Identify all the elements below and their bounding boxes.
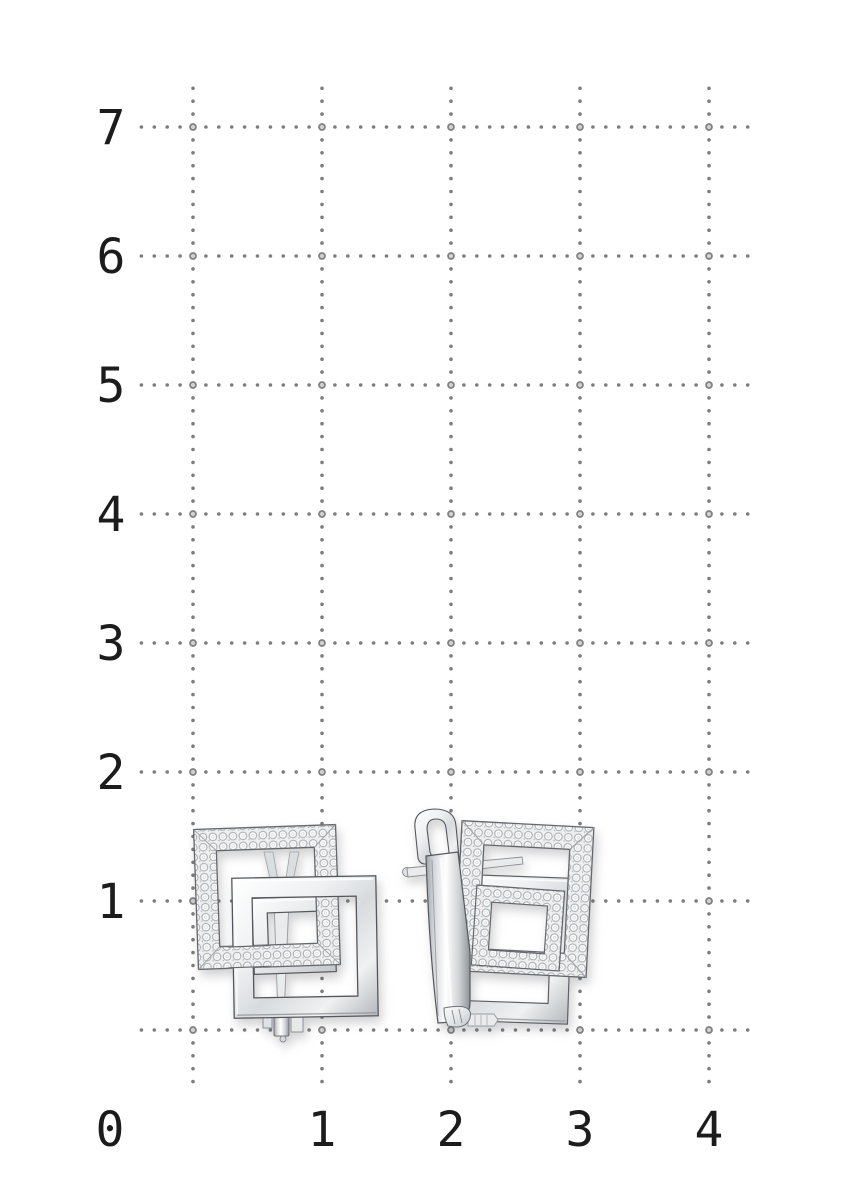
grid-dot <box>578 164 582 168</box>
grid-dot <box>540 770 544 774</box>
grid-dot <box>707 990 711 994</box>
grid-dot <box>153 641 157 645</box>
grid-dot <box>707 280 711 284</box>
grid-dot <box>449 577 453 581</box>
grid-dot <box>475 770 479 774</box>
grid-dot <box>191 744 195 748</box>
grid-dot <box>320 538 324 542</box>
grid-dot <box>320 1041 324 1045</box>
grid-dot <box>578 151 582 155</box>
grid-dot <box>578 87 582 91</box>
grid-dot <box>707 319 711 323</box>
grid-dot <box>269 512 273 516</box>
grid-dot <box>320 474 324 478</box>
grid-dot <box>449 280 453 284</box>
grid-dot <box>178 770 182 774</box>
grid-dot <box>191 822 195 826</box>
grid-dot <box>707 99 711 103</box>
grid-dot <box>243 770 247 774</box>
grid-dot <box>578 667 582 671</box>
grid-dot <box>449 551 453 555</box>
grid-dot <box>449 744 453 748</box>
grid-dot <box>462 770 466 774</box>
grid-dot <box>669 125 673 129</box>
grid-dot <box>320 486 324 490</box>
grid-dot <box>191 951 195 955</box>
grid-dot <box>243 383 247 387</box>
grid-dot <box>720 1028 724 1032</box>
grid-dot <box>320 783 324 787</box>
grid-dot <box>720 125 724 129</box>
grid-node-dot <box>448 382 454 388</box>
grid-dot <box>359 383 363 387</box>
grid-dot <box>527 125 531 129</box>
grid-dot <box>746 512 750 516</box>
grid-dot <box>707 809 711 813</box>
grid-dot <box>578 732 582 736</box>
grid-dot <box>527 254 531 258</box>
grid-dot <box>191 370 195 374</box>
grid-dot <box>191 1054 195 1058</box>
grid-dot <box>320 654 324 658</box>
left-earring-weave-patch <box>228 945 271 968</box>
grid-dot <box>269 383 273 387</box>
grid-dot <box>320 719 324 723</box>
grid-dot <box>294 383 298 387</box>
grid-dot <box>333 512 337 516</box>
grid-dot <box>449 783 453 787</box>
grid-dot <box>191 886 195 890</box>
grid-dot <box>565 641 569 645</box>
grid-dot <box>320 732 324 736</box>
grid-dot <box>191 306 195 310</box>
x-axis-label: 2 <box>437 1102 466 1158</box>
scene-svg: 012347654321 <box>0 0 857 1200</box>
grid-dot <box>707 693 711 697</box>
grid-dot <box>578 757 582 761</box>
grid-dot <box>707 525 711 529</box>
grid-dot <box>140 254 144 258</box>
grid-dot <box>604 125 608 129</box>
grid-dot <box>217 254 221 258</box>
grid-dot <box>591 125 595 129</box>
grid-dot <box>681 770 685 774</box>
grid-dot <box>707 577 711 581</box>
grid-dot <box>320 396 324 400</box>
grid-dot <box>578 1041 582 1045</box>
grid-dot <box>462 125 466 129</box>
grid-dot <box>307 641 311 645</box>
grid-dot <box>359 770 363 774</box>
grid-dot <box>707 241 711 245</box>
grid-dot <box>385 125 389 129</box>
grid-dot <box>333 1028 337 1032</box>
grid-dot <box>320 1067 324 1071</box>
grid-dot <box>359 641 363 645</box>
grid-dot <box>372 383 376 387</box>
grid-dot <box>565 125 569 129</box>
grid-dot <box>643 383 647 387</box>
grid-dot <box>256 383 260 387</box>
grid-dot <box>449 396 453 400</box>
grid-dot <box>552 383 556 387</box>
grid-dot <box>320 564 324 568</box>
grid-node-dot <box>706 640 712 646</box>
grid-dot <box>707 615 711 619</box>
grid-dot <box>320 1054 324 1058</box>
y-axis-label: 3 <box>97 616 126 672</box>
grid-dot <box>320 99 324 103</box>
grid-dot <box>488 125 492 129</box>
grid-node-dot <box>706 769 712 775</box>
grid-dot <box>746 125 750 129</box>
grid-dot <box>681 383 685 387</box>
grid-dot <box>578 138 582 142</box>
grid-dot <box>217 1028 221 1032</box>
grid-dot <box>165 1028 169 1032</box>
grid-dot <box>630 1028 634 1032</box>
grid-dot <box>707 628 711 632</box>
grid-dot <box>191 151 195 155</box>
grid-dot <box>669 383 673 387</box>
grid-dot <box>372 770 376 774</box>
grid-dot <box>449 422 453 426</box>
grid-dot <box>720 899 724 903</box>
grid-dot <box>191 603 195 607</box>
grid-node-dot <box>577 382 583 388</box>
grid-dot <box>320 203 324 207</box>
grid-dot <box>320 990 324 994</box>
grid-node-dot <box>577 1027 583 1033</box>
grid-dot <box>501 512 505 516</box>
grid-dot <box>243 125 247 129</box>
grid-dot <box>191 938 195 942</box>
grid-dot <box>488 383 492 387</box>
grid-dot <box>578 706 582 710</box>
grid-dot <box>707 499 711 503</box>
grid-dot <box>707 977 711 981</box>
grid-dot <box>333 641 337 645</box>
grid-dot <box>140 641 144 645</box>
grid-dot <box>707 654 711 658</box>
grid-dot <box>475 125 479 129</box>
grid-dot <box>681 125 685 129</box>
grid-dot <box>320 409 324 413</box>
grid-dot <box>578 499 582 503</box>
grid-dot <box>578 693 582 697</box>
grid-node-dot <box>190 253 196 259</box>
grid-dot <box>514 770 518 774</box>
grid-dot <box>578 615 582 619</box>
grid-dot <box>449 216 453 220</box>
grid-dot <box>307 125 311 129</box>
grid-dot <box>346 641 350 645</box>
grid-dot <box>707 938 711 942</box>
grid-dot <box>578 461 582 465</box>
grid-dot <box>230 254 234 258</box>
grid-dot <box>191 977 195 981</box>
grid-dot <box>707 1002 711 1006</box>
grid-dot <box>449 1041 453 1045</box>
grid-dot <box>501 254 505 258</box>
grid-dot <box>707 886 711 890</box>
grid-dot <box>578 1002 582 1006</box>
grid-dot <box>307 770 311 774</box>
grid-dot <box>591 770 595 774</box>
grid-dot <box>707 796 711 800</box>
grid-dot <box>449 319 453 323</box>
grid-dot <box>320 615 324 619</box>
grid-dot <box>617 512 621 516</box>
grid-node-dot <box>190 124 196 130</box>
grid-dot <box>449 693 453 697</box>
grid-dot <box>191 667 195 671</box>
grid-dot <box>578 1080 582 1084</box>
grid-dot <box>411 1028 415 1032</box>
grid-dot <box>243 254 247 258</box>
grid-dot <box>514 512 518 516</box>
grid-dot <box>320 293 324 297</box>
grid-dot <box>449 203 453 207</box>
grid-dot <box>204 641 208 645</box>
grid-dot <box>191 628 195 632</box>
grid-dot <box>256 641 260 645</box>
grid-dot <box>578 203 582 207</box>
grid-dot <box>294 641 298 645</box>
grid-dot <box>746 383 750 387</box>
grid-dot <box>578 332 582 336</box>
grid-dot <box>191 319 195 323</box>
grid-dot <box>449 293 453 297</box>
grid-dot <box>449 461 453 465</box>
grid-dot <box>578 577 582 581</box>
grid-dot <box>191 409 195 413</box>
grid-dot <box>230 1028 234 1032</box>
grid-dot <box>320 357 324 361</box>
grid-dot <box>630 512 634 516</box>
grid-dot <box>578 293 582 297</box>
grid-dot <box>191 590 195 594</box>
grid-dot <box>140 1028 144 1032</box>
grid-dot <box>153 254 157 258</box>
grid-dot <box>578 603 582 607</box>
grid-dot <box>630 254 634 258</box>
grid-dot <box>423 383 427 387</box>
grid-dot <box>694 125 698 129</box>
grid-dot <box>359 125 363 129</box>
grid-dot <box>578 345 582 349</box>
grid-dot <box>540 383 544 387</box>
grid-dot <box>475 641 479 645</box>
grid-dot <box>423 125 427 129</box>
grid-dot <box>204 383 208 387</box>
grid-dot <box>707 1067 711 1071</box>
grid-dot <box>385 383 389 387</box>
grid-dot <box>578 422 582 426</box>
grid-dot <box>191 203 195 207</box>
grid-dot <box>191 719 195 723</box>
grid-dot <box>643 1028 647 1032</box>
grid-dot <box>488 1028 492 1032</box>
grid-dot <box>191 732 195 736</box>
grid-dot <box>488 770 492 774</box>
grid-dot <box>449 151 453 155</box>
grid-dot <box>707 332 711 336</box>
grid-dot <box>436 512 440 516</box>
grid-dot <box>475 254 479 258</box>
grid-dot <box>578 474 582 478</box>
x-axis-label: 4 <box>695 1102 724 1158</box>
grid-dot <box>320 177 324 181</box>
grid-dot <box>191 99 195 103</box>
grid-dot <box>204 254 208 258</box>
grid-dot <box>436 770 440 774</box>
grid-dot <box>153 1028 157 1032</box>
grid-dot <box>191 693 195 697</box>
grid-dot <box>333 125 337 129</box>
grid-dot <box>449 306 453 310</box>
grid-dot <box>643 770 647 774</box>
grid-dot <box>411 512 415 516</box>
grid-node-dot <box>448 1027 454 1033</box>
grid-dot <box>191 615 195 619</box>
grid-dot <box>191 1067 195 1071</box>
grid-dot <box>552 641 556 645</box>
grid-dot <box>449 409 453 413</box>
grid-node-dot <box>319 511 325 517</box>
grid-dot <box>669 512 673 516</box>
grid-dot <box>681 641 685 645</box>
grid-dot <box>694 254 698 258</box>
grid-node-dot <box>319 124 325 130</box>
grid-dot <box>191 654 195 658</box>
grid-dot <box>320 603 324 607</box>
grid-dot <box>372 641 376 645</box>
grid-dot <box>630 383 634 387</box>
grid-dot <box>501 641 505 645</box>
grid-dot <box>269 125 273 129</box>
grid-dot <box>669 770 673 774</box>
grid-dot <box>320 551 324 555</box>
grid-dot <box>398 1028 402 1032</box>
grid-dot <box>578 551 582 555</box>
grid-dot <box>514 1028 518 1032</box>
grid-dot <box>320 216 324 220</box>
grid-dot <box>707 112 711 116</box>
grid-dot <box>140 512 144 516</box>
grid-dot <box>346 899 350 903</box>
grid-dot <box>346 512 350 516</box>
grid-dot <box>411 125 415 129</box>
grid-dot <box>423 641 427 645</box>
grid-dot <box>488 512 492 516</box>
grid-dot <box>733 899 737 903</box>
grid-dot <box>681 512 685 516</box>
grid-node-dot <box>319 382 325 388</box>
grid-node-dot <box>190 769 196 775</box>
grid-dot <box>578 267 582 271</box>
grid-dot <box>191 538 195 542</box>
grid-dot <box>707 306 711 310</box>
grid-dot <box>307 1028 311 1032</box>
grid-dot <box>320 744 324 748</box>
grid-dot <box>733 770 737 774</box>
grid-dot <box>707 474 711 478</box>
grid-dot <box>540 1028 544 1032</box>
grid-dot <box>372 512 376 516</box>
grid-dot <box>707 357 711 361</box>
grid-dot <box>449 1080 453 1084</box>
grid-dot <box>398 512 402 516</box>
grid-dot <box>449 809 453 813</box>
grid-dot <box>514 641 518 645</box>
grid-dot <box>320 590 324 594</box>
grid-dot <box>449 628 453 632</box>
grid-dot <box>243 512 247 516</box>
grid-dot <box>707 267 711 271</box>
grid-dot <box>707 861 711 865</box>
grid-dot <box>669 641 673 645</box>
grid-dot <box>140 899 144 903</box>
grid-dot <box>294 770 298 774</box>
grid-dot <box>204 125 208 129</box>
grid-node-dot <box>190 382 196 388</box>
grid-dot <box>578 306 582 310</box>
grid-node-dot <box>577 640 583 646</box>
grid-dot <box>178 641 182 645</box>
grid-dot <box>604 512 608 516</box>
grid-dot <box>204 1028 208 1032</box>
grid-dot <box>320 87 324 91</box>
grid-node-dot <box>706 898 712 904</box>
grid-dot <box>243 641 247 645</box>
grid-dot <box>140 125 144 129</box>
grid-dot <box>153 383 157 387</box>
grid-dot <box>191 461 195 465</box>
grid-dot <box>449 332 453 336</box>
grid-node-dot <box>577 769 583 775</box>
grid-dot <box>578 357 582 361</box>
measurement-grid: 012347654321 <box>96 87 750 1159</box>
grid-dot <box>191 448 195 452</box>
grid-dot <box>436 1028 440 1032</box>
grid-dot <box>320 809 324 813</box>
grid-dot <box>707 951 711 955</box>
grid-dot <box>720 512 724 516</box>
grid-dot <box>178 512 182 516</box>
grid-dot <box>578 796 582 800</box>
grid-dot <box>372 1028 376 1032</box>
grid-dot <box>578 280 582 284</box>
grid-dot <box>178 254 182 258</box>
grid-dot <box>462 254 466 258</box>
grid-dot <box>411 254 415 258</box>
grid-dot <box>681 1028 685 1032</box>
grid-dot <box>707 757 711 761</box>
grid-dot <box>449 1054 453 1058</box>
grid-dot <box>656 254 660 258</box>
grid-dot <box>346 1028 350 1032</box>
grid-dot <box>669 1028 673 1032</box>
grid-dot <box>449 112 453 116</box>
grid-dot <box>514 383 518 387</box>
grid-dot <box>191 112 195 116</box>
grid-dot <box>191 1002 195 1006</box>
grid-dot <box>153 512 157 516</box>
grid-dot <box>449 99 453 103</box>
grid-dot <box>449 680 453 684</box>
grid-dot <box>191 783 195 787</box>
